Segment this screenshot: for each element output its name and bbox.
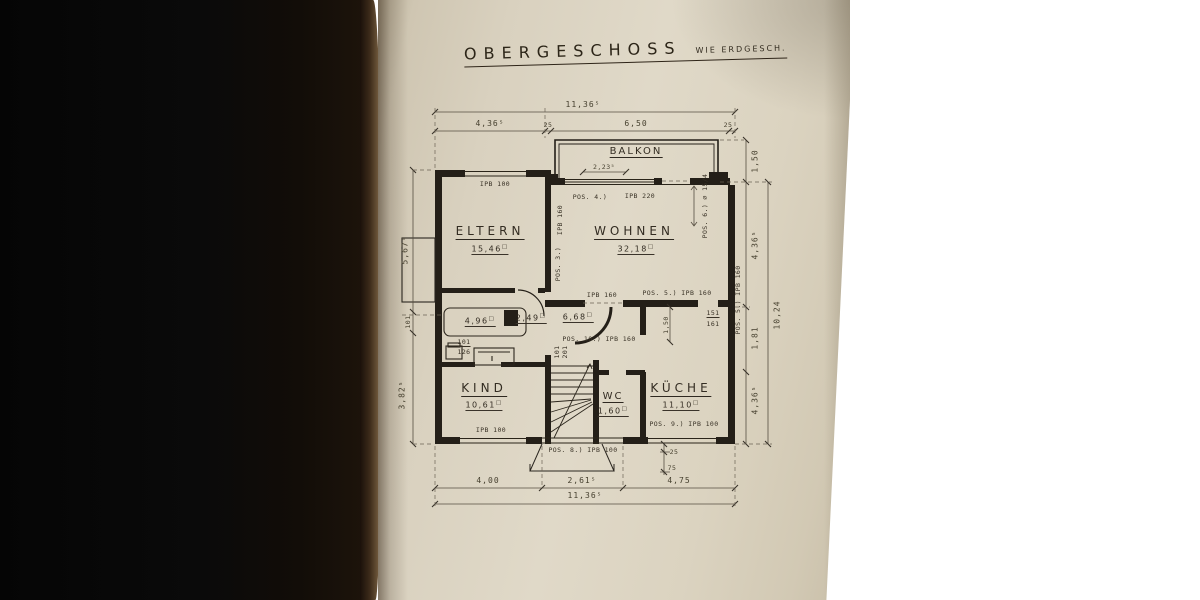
stairs (551, 364, 593, 438)
dim-top-wall2: 25 (724, 121, 733, 129)
room-area-bad: 4,96□ (465, 316, 496, 327)
room-label-eltern: ELTERN (456, 224, 525, 240)
dim-door-c1: 151 (707, 309, 720, 318)
dim-door-a2: 126 (458, 348, 471, 356)
pos3-note: POS. 3.) (554, 247, 562, 282)
room-area-kind: 10,61□ (465, 400, 502, 411)
beam-eltern-window: IPB 100 (480, 180, 510, 188)
dim-door-b2: 201 (561, 346, 569, 359)
beam-wohnen-left: IPB 160 (556, 205, 564, 235)
dim-door-a1: 101 (458, 338, 471, 347)
pos5b-note: POS. 5.) IPB 160 (734, 265, 742, 334)
dim-mid-height: 1,50 (662, 316, 670, 334)
beam-balkon: IPB 220 (625, 192, 655, 200)
page-subtitle: WIE ERDGESCH. (695, 43, 786, 57)
dark-background-left (0, 0, 366, 600)
room-area-wc: 1,60□ (598, 406, 629, 417)
dim-door-b1: 101 (553, 346, 561, 359)
beam-kind-window: IPB 100 (476, 426, 506, 434)
pos9-note: POS. 9.) IPB 100 (649, 420, 718, 428)
room-area-eltern: 15,46□ (471, 244, 508, 255)
beam-mid: IPB 160 (587, 291, 617, 299)
room-label-kueche: KÜCHE (650, 381, 711, 397)
dim-top-right: 6,50 (624, 119, 647, 128)
room-label-balkon: BALKON (610, 146, 663, 158)
dim-bottom-right: 4,75 (667, 476, 690, 485)
dim-top-total: 11,36⁵ (566, 100, 601, 109)
pos10-note: POS. 10.) IPB 160 (562, 335, 635, 343)
dim-bottom-left: 4,00 (476, 476, 499, 485)
room-area-kueche: 11,10□ (662, 400, 699, 411)
room-label-kind: KIND (461, 381, 507, 397)
dim-right-balcony: 1,50 (751, 149, 760, 172)
pos6-note: POS. 6.) ∅ 15/4 (701, 174, 709, 239)
dim-door-c2: 161 (707, 320, 720, 328)
room-area-wohnen: 32,18□ (617, 244, 654, 255)
pos5a-note: POS. 5.) IPB 160 (642, 289, 711, 297)
dim-left-door: 101 (404, 315, 412, 328)
dim-top-left: 4,36⁵ (475, 119, 504, 128)
dim-right-upper: 4,36⁵ (751, 230, 760, 259)
dim-right-lower: 4,36⁵ (751, 385, 760, 414)
pos8-note: POS. 8.) IPB 100 (548, 446, 617, 454)
dim-right-mid: 1,81 (751, 326, 760, 349)
dim-small-1: 25 (670, 448, 679, 456)
room-label-wohnen: WOHNEN (594, 224, 674, 240)
room-area-flur: 6,68□ (563, 312, 594, 323)
dim-left-upper: 5,67⁵ (401, 235, 410, 264)
dim-top-wall: 25 (544, 121, 553, 129)
dim-bottom-total: 11,36⁵ (568, 491, 603, 500)
room-label-wc: WC (603, 391, 624, 403)
dim-bottom-mid: 2,61⁵ (567, 476, 596, 485)
dim-right-total: 10,24 (773, 300, 782, 329)
dim-small-2: 75 (668, 464, 677, 472)
dim-left-lower: 3,82⁵ (398, 380, 407, 409)
pos4-note: POS. 4.) (573, 193, 608, 201)
dim-balkon-width: 2,23⁵ (593, 163, 615, 171)
paper-page: OBERGESCHOSS WIE ERDGESCH. BALKON ELTERN… (378, 0, 850, 600)
photographed-floorplan-page: OBERGESCHOSS WIE ERDGESCH. BALKON ELTERN… (0, 0, 1200, 600)
room-area-vorraum: 2,49□ (516, 313, 547, 324)
